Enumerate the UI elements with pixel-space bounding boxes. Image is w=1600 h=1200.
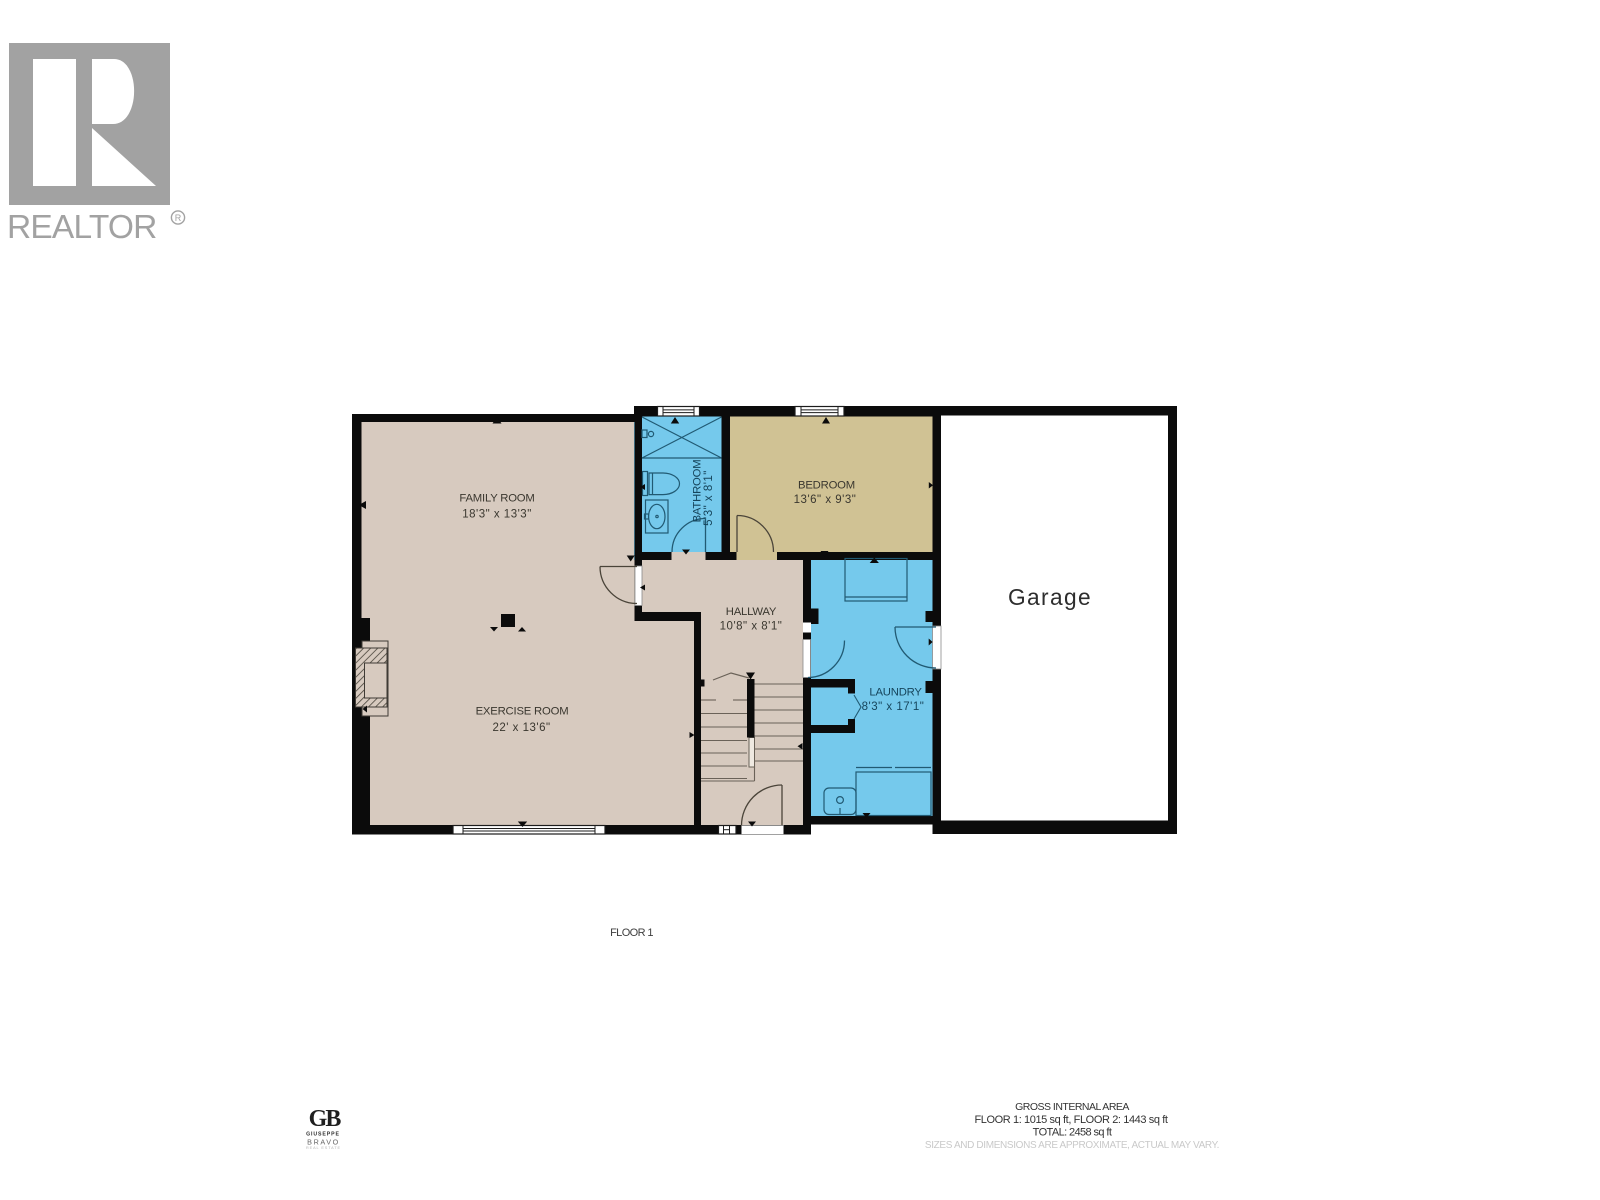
svg-text:18'3" x 13'3": 18'3" x 13'3" — [462, 509, 532, 521]
svg-text:SIZES AND DIMENSIONS ARE APPRO: SIZES AND DIMENSIONS ARE APPROXIMATE, AC… — [925, 1140, 1219, 1151]
svg-text:LAUNDRY: LAUNDRY — [869, 687, 922, 699]
svg-text:FAMILY ROOM: FAMILY ROOM — [459, 493, 534, 505]
svg-text:GROSS INTERNAL AREA: GROSS INTERNAL AREA — [1015, 1101, 1129, 1113]
svg-text:FLOOR 1: 1015 sq ft, FLOOR 2:: FLOOR 1: 1015 sq ft, FLOOR 2: 1443 sq ft — [974, 1114, 1167, 1126]
svg-text:8'3" x 17'1": 8'3" x 17'1" — [862, 701, 925, 713]
svg-text:REAL ESTATE: REAL ESTATE — [306, 1146, 341, 1150]
svg-text:FLOOR 1: FLOOR 1 — [610, 927, 653, 939]
svg-text:BATHROOM: BATHROOM — [692, 460, 704, 523]
svg-text:Garage: Garage — [1008, 584, 1092, 610]
svg-text:5'3" x 8'1": 5'3" x 8'1" — [703, 470, 715, 526]
svg-text:BEDROOM: BEDROOM — [798, 479, 855, 491]
svg-text:TOTAL: 2458 sq ft: TOTAL: 2458 sq ft — [1033, 1127, 1112, 1139]
svg-text:HALLWAY: HALLWAY — [726, 606, 777, 618]
svg-text:13'6" x 9'3": 13'6" x 9'3" — [794, 494, 857, 506]
svg-text:R: R — [175, 213, 182, 223]
svg-text:GB: GB — [309, 1106, 342, 1132]
svg-text:EXERCISE ROOM: EXERCISE ROOM — [476, 706, 569, 718]
svg-text:10'8" x 8'1": 10'8" x 8'1" — [720, 621, 783, 633]
svg-text:22' x 13'6": 22' x 13'6" — [492, 722, 550, 734]
svg-text:REALTOR: REALTOR — [7, 209, 157, 246]
